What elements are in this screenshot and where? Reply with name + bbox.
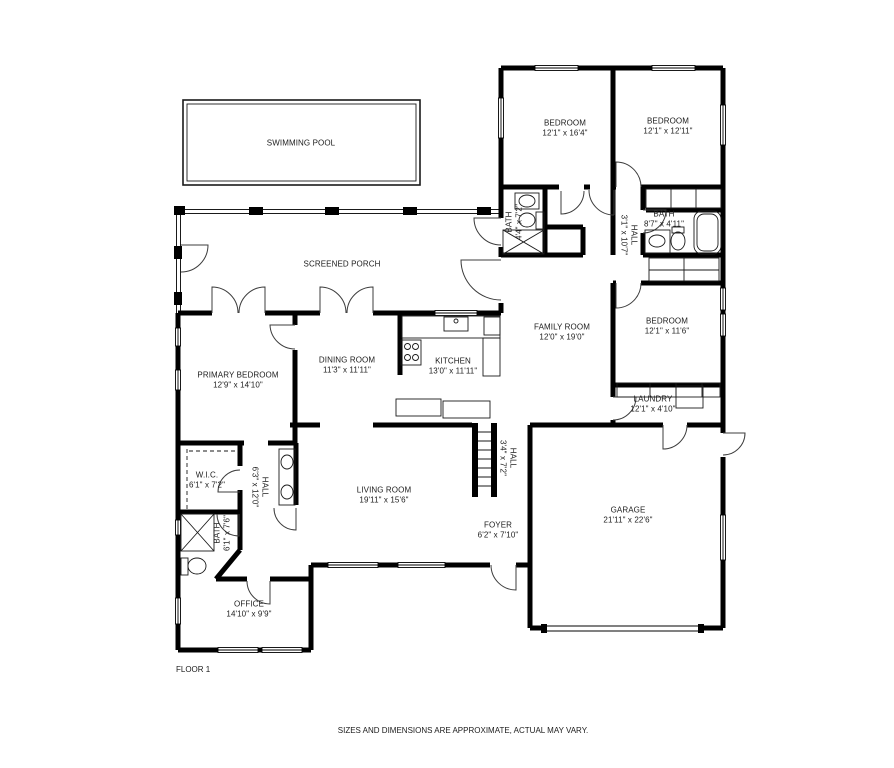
room-label-office: OFFICE 14'10" x 9'9"	[226, 600, 271, 619]
room-label-foyer: FOYER 6'2" x 7'10"	[478, 521, 519, 540]
room-label-bedroom-2: BEDROOM 12'1" x 12'11"	[643, 117, 692, 136]
floor-plan-drawing	[0, 0, 894, 768]
primary-bath-fixtures	[181, 514, 214, 575]
room-label-dining-room: DINING ROOM 11'3" x 11'11"	[319, 356, 375, 375]
room-name: LIVING ROOM	[357, 486, 411, 496]
room-label-laundry: LAUNDRY 12'1" x 4'10"	[630, 395, 675, 414]
room-name: BATH	[644, 210, 684, 220]
disclaimer-text: SIZES AND DIMENSIONS ARE APPROXIMATE, AC…	[338, 726, 588, 735]
bedroom3-closet	[649, 258, 719, 281]
room-name: W.I.C.	[189, 471, 225, 481]
room-dims: 12'1" x 11'6"	[645, 326, 690, 336]
floor-label: FLOOR 1	[176, 665, 210, 674]
room-label-hall-1: HALL 3'1" x 10'7"	[620, 215, 639, 256]
room-name: PRIMARY BEDROOM	[197, 371, 278, 381]
room-name: GARAGE	[603, 506, 652, 516]
room-name: BATH	[213, 515, 223, 551]
room-name: DINING ROOM	[319, 356, 375, 366]
kitchen-island	[396, 399, 490, 418]
room-dims: 12'1" x 16'4"	[542, 128, 587, 138]
room-dims: 21'11" x 22'6"	[603, 515, 652, 525]
room-name: HALL	[260, 467, 270, 508]
room-dims: 12'1" x 4'10"	[630, 404, 675, 414]
room-dims: 6'1" x 7'6"	[222, 515, 232, 551]
room-name: BEDROOM	[542, 119, 587, 129]
floor-plan-page: SWIMMING POOL SCREENED PORCH BEDROOM 12'…	[0, 0, 894, 768]
room-label-garage: GARAGE 21'11" x 22'6"	[603, 506, 652, 525]
stair-treads	[478, 432, 491, 486]
room-name: SWIMMING POOL	[267, 138, 335, 148]
room-dims: 12'0" x 19'0"	[534, 332, 590, 342]
room-name: BEDROOM	[645, 317, 690, 327]
room-label-bedroom-1: BEDROOM 12'1" x 16'4"	[542, 119, 587, 138]
room-name: FAMILY ROOM	[534, 323, 590, 333]
room-dims: 11'3" x 11'11"	[319, 365, 375, 375]
room-label-wic: W.I.C. 6'1" x 7'2"	[189, 471, 225, 490]
room-label-swimming-pool: SWIMMING POOL	[267, 138, 335, 148]
room-dims: 6'3" x 12'0"	[251, 467, 261, 508]
room-dims: 12'1" x 12'11"	[643, 126, 692, 136]
linen-closet	[646, 189, 721, 208]
room-dims: 12'9" x 14'10"	[197, 380, 278, 390]
room-label-family-room: FAMILY ROOM 12'0" x 19'0"	[534, 323, 590, 342]
room-name: HALL	[508, 440, 518, 476]
room-dims: 6'1" x 7'2"	[189, 480, 225, 490]
room-label-hall-3: HALL 3'4" x 7'2"	[499, 440, 518, 476]
room-label-kitchen: KITCHEN 13'0" x 11'11"	[429, 357, 478, 376]
room-dims: 14'10" x 9'9"	[226, 609, 271, 619]
room-dims: 19'11" x 15'6"	[357, 495, 411, 505]
room-label-bedroom-3: BEDROOM 12'1" x 11'6"	[645, 317, 690, 336]
room-label-screened-porch: SCREENED PORCH	[304, 259, 381, 269]
room-dims: 8'7" x 4'11"	[644, 219, 684, 229]
room-name: FOYER	[478, 521, 519, 531]
room-dims: 4'4" x 7'2"	[514, 204, 524, 240]
room-label-bath-3: BATH 6'1" x 7'6"	[213, 515, 232, 551]
room-label-hall-2: HALL 6'3" x 12'0"	[251, 467, 270, 508]
room-name: KITCHEN	[429, 357, 478, 367]
room-name: BEDROOM	[643, 117, 692, 127]
room-name: LAUNDRY	[630, 395, 675, 405]
room-dims: 3'1" x 10'7"	[620, 215, 630, 256]
hall-vanity	[279, 449, 295, 505]
room-name: HALL	[629, 215, 639, 256]
room-label-bath-2: BATH 8'7" x 4'11"	[644, 210, 684, 229]
room-dims: 3'4" x 7'2"	[499, 440, 509, 476]
room-label-bath-1: BATH 4'4" x 7'2"	[505, 204, 524, 240]
room-name: OFFICE	[226, 600, 271, 610]
room-dims: 13'0" x 11'11"	[429, 366, 478, 376]
room-label-primary-bedroom: PRIMARY BEDROOM 12'9" x 14'10"	[197, 371, 278, 390]
room-dims: 6'2" x 7'10"	[478, 530, 519, 540]
garage-door	[541, 624, 704, 633]
room-name: SCREENED PORCH	[304, 259, 381, 269]
room-name: BATH	[505, 204, 515, 240]
room-label-living-room: LIVING ROOM 19'11" x 15'6"	[357, 486, 411, 505]
